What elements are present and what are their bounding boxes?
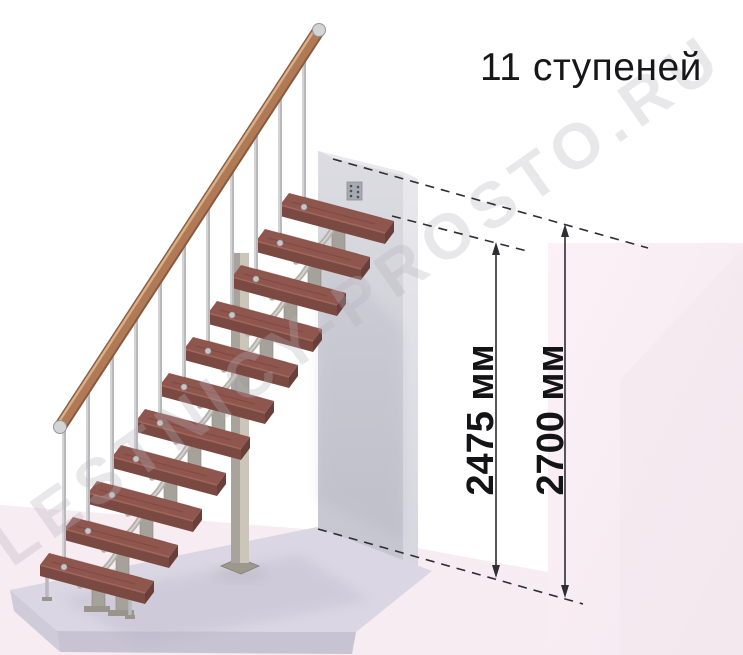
baluster-mount-disc [61, 564, 67, 570]
baluster-mount-disc [253, 276, 259, 282]
dimension-label-2475: 2475 мм [460, 344, 502, 495]
wall-mounting-plate [347, 182, 362, 200]
support-foot-plate [84, 606, 110, 612]
diagram-canvas: LESTNICY-PROSTO.RU 2475 мм 2700 мм 11 ст… [0, 0, 743, 655]
front-leg-foot [42, 597, 52, 601]
dimension-label-2700: 2700 мм [530, 344, 572, 495]
front-leg-foot [125, 615, 135, 619]
handrail-end-cap-bottom [54, 421, 67, 434]
baluster-mount-disc [229, 312, 235, 318]
baluster-mount-disc [205, 348, 211, 354]
staircase-diagram: LESTNICY-PROSTO.RU 2475 мм 2700 мм 11 ст… [0, 0, 743, 655]
baluster-mount-disc [277, 240, 283, 246]
handrail-end-cap-top [313, 24, 326, 37]
baluster-mount-disc [301, 204, 307, 210]
slab-front-face [57, 631, 356, 654]
diagram-title: 11 ступеней [480, 46, 702, 89]
